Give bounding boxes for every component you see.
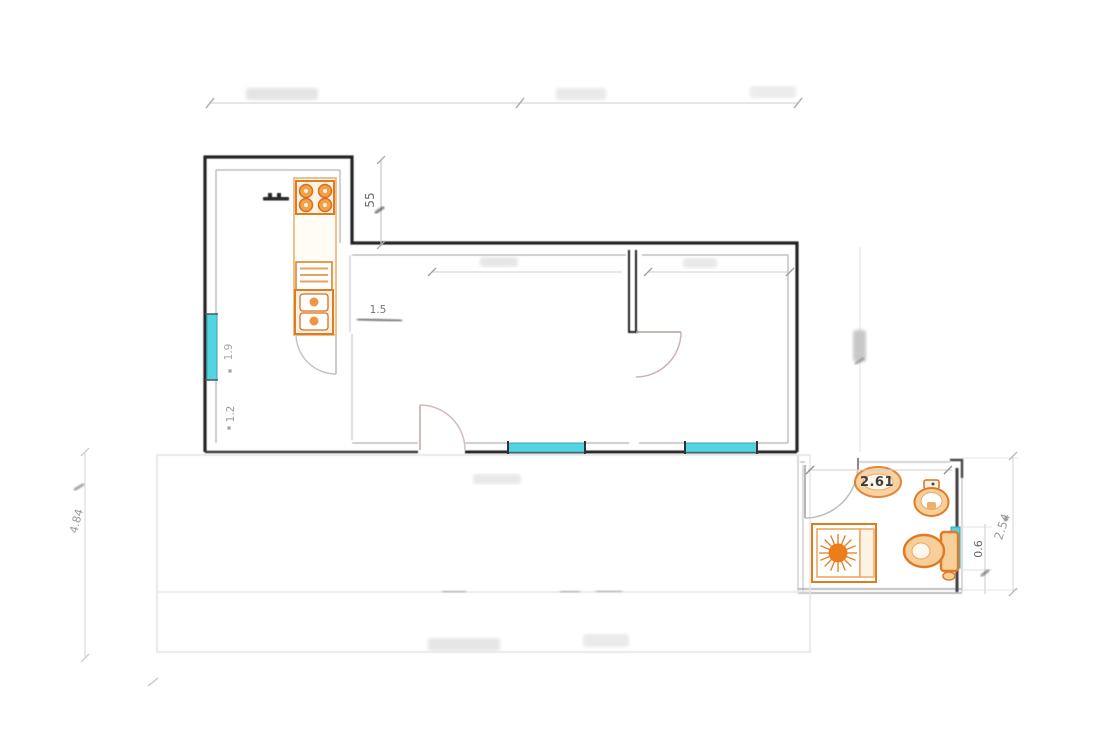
dimension-55: 55 <box>363 156 385 249</box>
dimension-interior-rooms <box>428 268 794 276</box>
door-swing-arc <box>636 332 681 377</box>
bedroom-window <box>685 441 757 454</box>
faded-dimension-text <box>556 88 606 100</box>
interior-wall-bedroom <box>628 250 638 332</box>
faded-dimension-text <box>246 88 318 100</box>
faded-dimension-text <box>750 86 796 98</box>
dishwasher-icon <box>296 262 332 290</box>
bathroom-bottom-wall <box>798 589 962 593</box>
dimension-bathroom-window: 0.6 <box>962 524 992 594</box>
double-sink-icon <box>295 290 333 334</box>
shower-tray-icon <box>812 524 876 582</box>
dimension-kitchen-left: 1.9 1.2 <box>223 344 237 430</box>
dimension-right-faded <box>853 247 866 452</box>
terrace-outline-faint <box>157 455 810 652</box>
faded-annotations <box>148 86 796 686</box>
dim-label-1-5: 1.5 <box>370 304 387 316</box>
toilet-icon <box>904 532 958 580</box>
kitchen-divider-faint <box>350 255 352 440</box>
living-room-door <box>420 405 465 450</box>
faded-dimension-text <box>480 257 518 267</box>
floor-plan-page: 55 1.5 1.9 1.2 4.84 <box>0 0 1109 741</box>
doors <box>296 332 858 518</box>
faded-dimension-text <box>683 258 717 268</box>
dimension-left-height: 4.84 <box>67 448 89 662</box>
living-room-window <box>508 441 585 454</box>
dim-label-2-61: 2.61 <box>860 475 894 490</box>
faded-dimension-text <box>583 634 629 647</box>
kitchen-door <box>296 334 336 374</box>
faded-dimension-text <box>428 638 500 651</box>
dimension-bathroom-height: 2.54 <box>962 452 1018 596</box>
faded-dimension-text <box>473 474 521 484</box>
bedroom-door <box>636 332 681 377</box>
dim-label-0-6: 0.6 <box>972 540 985 558</box>
counter-fixture-mark <box>263 193 289 201</box>
kitchen-window <box>205 314 218 380</box>
stove-icon <box>296 181 334 214</box>
faded-tick <box>148 678 158 686</box>
dim-label-2-54: 2.54 <box>991 512 1013 542</box>
door-swing-arc <box>420 405 465 450</box>
bidet-icon <box>915 480 949 516</box>
dim-label-1-2: 1.2 <box>225 406 237 423</box>
door-swing-arc <box>805 465 858 518</box>
dim-label-4-84: 4.84 <box>67 508 86 535</box>
kitchen-fixtures <box>263 178 336 335</box>
floor-plan-canvas: 55 1.5 1.9 1.2 4.84 <box>0 0 1109 741</box>
dim-label-1-9: 1.9 <box>223 344 235 361</box>
dim-label-55: 55 <box>363 192 377 207</box>
door-swing-arc <box>296 334 336 374</box>
bathroom-left-wall <box>798 455 803 592</box>
inner-wall-lines-living <box>352 255 788 443</box>
dimension-1-5: 1.5 <box>357 304 402 321</box>
